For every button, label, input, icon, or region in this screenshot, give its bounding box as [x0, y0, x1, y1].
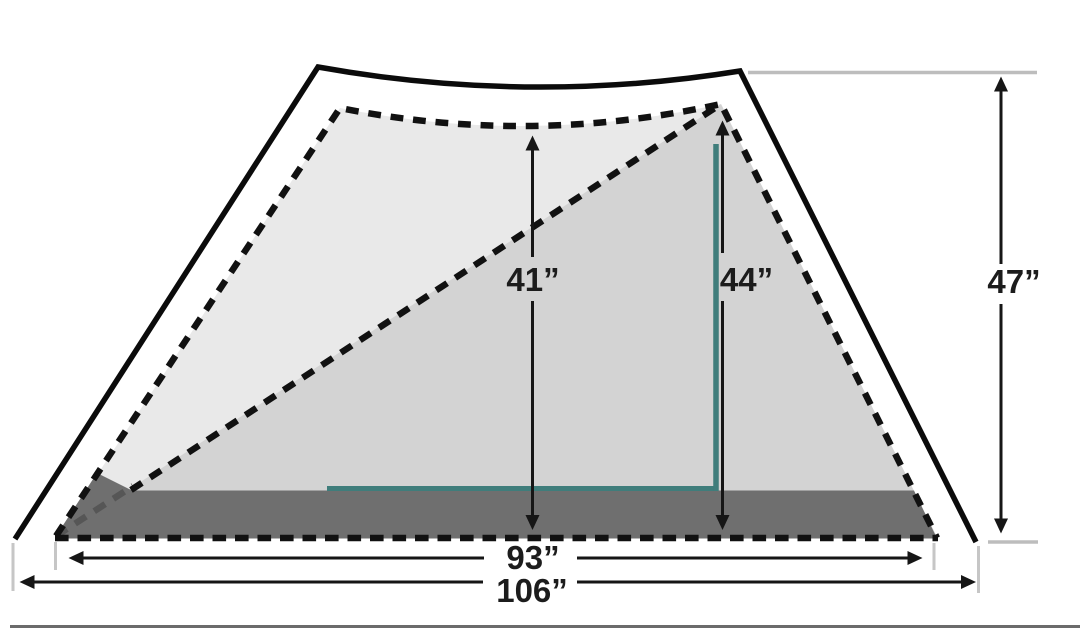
svg-text:44”: 44”	[720, 261, 773, 298]
svg-text:106”: 106”	[496, 572, 568, 609]
svg-text:41”: 41”	[506, 261, 559, 298]
svg-text:47”: 47”	[987, 263, 1040, 300]
svg-text:93”: 93”	[506, 539, 559, 576]
